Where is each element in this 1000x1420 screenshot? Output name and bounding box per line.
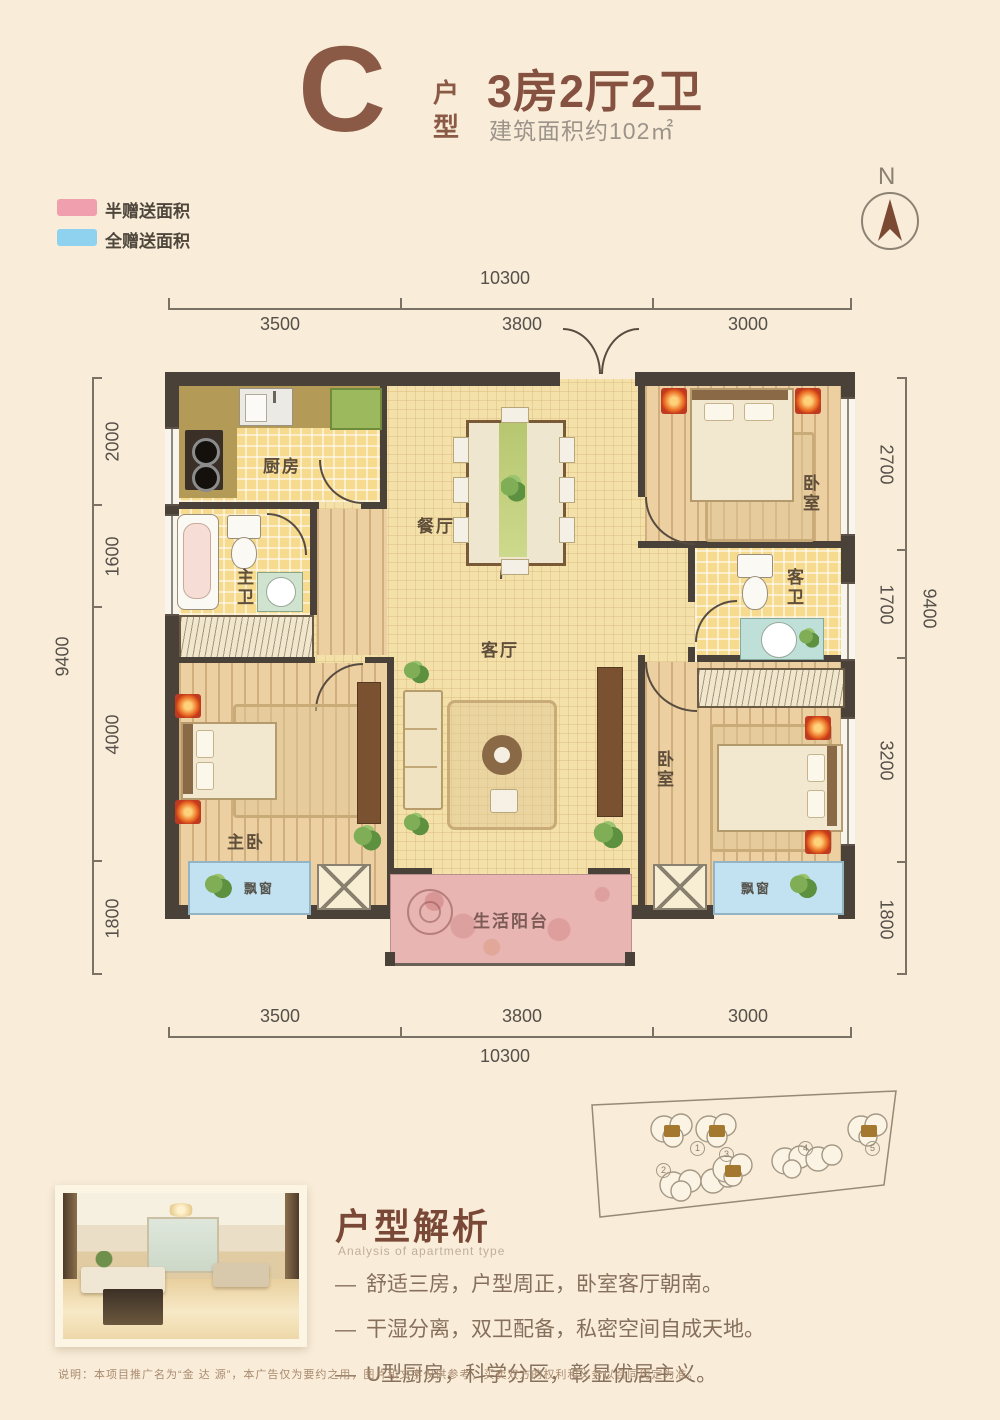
unit-type-label: 户型 [433, 76, 465, 144]
toilet-bowl-master [231, 537, 257, 569]
nightstand-icon [795, 388, 821, 414]
dim-left-seg2: 1600 [103, 522, 124, 592]
plant-icon [593, 820, 623, 852]
dim-right-seg2: 1700 [876, 570, 897, 640]
dim-left-seg4: 1800 [103, 884, 124, 954]
master-bath-label: 主卫 [231, 568, 256, 608]
dim-top-seg2: 3800 [502, 314, 542, 335]
plant-icon [403, 660, 429, 686]
dim-right-total: 9400 [919, 574, 940, 644]
building-number-2: 2 [656, 1163, 671, 1178]
area-subtitle: 建筑面积约102㎡ [489, 112, 674, 146]
analysis-point: —干湿分离，双卫配备，私密空间自成天地。 [335, 1313, 765, 1343]
building-number-3: 3 [719, 1147, 734, 1162]
dim-right-seg4: 1800 [876, 885, 897, 955]
toilet-tank-master [227, 515, 261, 539]
cutting-board-icon [330, 388, 382, 430]
dim-bottom-seg2: 3800 [502, 1006, 542, 1027]
nightstand-icon [661, 388, 687, 414]
analysis-title: 户型解析 [335, 1198, 491, 1250]
analysis-point: —舒适三房，户型周正，卧室客厅朝南。 [335, 1268, 765, 1298]
dim-right-seg3: 3200 [876, 726, 897, 796]
page-title: 3房2厅2卫 [487, 55, 703, 120]
compass-north-label: N [878, 163, 895, 191]
toilet-bowl-guest [742, 576, 768, 610]
analysis-points: —舒适三房，户型周正，卧室客厅朝南。 —干湿分离，双卫配备，私密空间自成天地。 … [335, 1268, 765, 1403]
analysis-subtitle: Analysis of apartment type [338, 1244, 505, 1258]
bedroom-br-bed-icon [717, 744, 843, 832]
dim-bottom-line [168, 1036, 852, 1038]
bullet-dash: — [335, 1318, 356, 1341]
dim-left-line [92, 377, 94, 975]
tv-cabinet-icon [597, 667, 623, 817]
plant-icon [353, 824, 381, 854]
dim-top-seg1: 3500 [260, 314, 300, 335]
kitchen-label: 厨房 [263, 452, 301, 477]
bullet-dash: — [335, 1273, 356, 1296]
living-rug [447, 700, 557, 830]
guest-bath-label: 客卫 [781, 568, 806, 608]
dim-top-line [168, 308, 852, 310]
interior-photo [55, 1185, 307, 1347]
bedroom-tr-label: 卧室 [797, 474, 822, 514]
unit-type-letter: C [298, 28, 386, 150]
dining-table-icon [466, 420, 566, 566]
bedroom-tr-bed-icon [690, 388, 794, 502]
entry-door-arc-right [601, 328, 639, 374]
legend-swatch-full-gift [57, 229, 97, 246]
master-closet [179, 615, 314, 661]
nightstand-icon [805, 716, 831, 740]
balcony-label: 生活阳台 [473, 907, 549, 932]
master-bed-icon [181, 722, 277, 800]
bathtub-icon [177, 514, 219, 610]
bay-window-right-label: 飘窗 [741, 878, 771, 897]
dim-bottom-seg1: 3500 [260, 1006, 300, 1027]
sofa-icon [403, 690, 443, 810]
dim-left-total: 9400 [53, 622, 74, 692]
dim-right-seg1: 2700 [876, 430, 897, 500]
dim-right-line [905, 377, 907, 975]
window-kitchen [165, 427, 179, 506]
legend-label-full-gift: 全赠送面积 [105, 227, 190, 252]
compass-icon [861, 192, 919, 250]
bay-window-right: 飘窗 [713, 861, 844, 915]
entry-door-arc-left [563, 328, 601, 374]
building-number-5: 5 [865, 1141, 880, 1156]
dim-bottom-total: 10300 [480, 1046, 530, 1067]
nightstand-icon [805, 830, 831, 854]
site-plan: 1 2 3 4 5 [578, 1085, 910, 1227]
kitchen-sink-icon [239, 388, 293, 426]
floor-plan: 厨房 主卫 餐厅 客厅 [165, 372, 855, 975]
dim-bottom-seg3: 3000 [728, 1006, 768, 1027]
living-label: 客厅 [481, 636, 519, 661]
dim-top-seg3: 3000 [728, 314, 768, 335]
dim-top-total: 10300 [480, 268, 530, 289]
bedroom-br-closet [697, 668, 845, 708]
legend-label-half-gift: 半赠送面积 [105, 197, 190, 222]
window-bedroom-tr [841, 397, 855, 536]
dining-label: 餐厅 [417, 512, 455, 537]
master-cabinet-icon [357, 682, 381, 824]
dim-left-seg1: 2000 [103, 407, 124, 477]
window-guest-bath [841, 582, 855, 661]
window-bedroom-br [841, 717, 855, 846]
plant-icon [403, 812, 429, 838]
bay-window-left: 飘窗 [188, 861, 311, 915]
balcony: 生活阳台 [390, 874, 632, 966]
planter-box-icon [317, 864, 371, 910]
bedroom-br-label: 卧室 [651, 750, 676, 790]
nightstand-icon [175, 694, 201, 718]
bay-window-left-label: 飘窗 [244, 878, 274, 897]
stove-icon [185, 430, 223, 490]
dim-left-seg3: 4000 [103, 700, 124, 770]
disclaimer-text: 说明：本项目推广名为“金 达 源”，本广告仅为要约之用，图片和文字仅供参考，买卖… [58, 1366, 699, 1382]
building-number-1: 1 [690, 1141, 705, 1156]
corridor-floor [317, 509, 387, 655]
master-bedroom-label: 主卧 [227, 828, 265, 853]
legend-swatch-half-gift [57, 199, 97, 216]
washing-machine-icon [407, 889, 453, 935]
nightstand-icon [175, 800, 201, 824]
building-number-4: 4 [798, 1141, 813, 1156]
planter-box-icon [653, 864, 707, 910]
basin-counter-master [257, 572, 303, 612]
toilet-tank-guest [737, 554, 773, 578]
floorplan-poster: C 户型 3房2厅2卫 建筑面积约102㎡ 半赠送面积 全赠送面积 N 1030… [0, 0, 1000, 1420]
basin-counter-guest [740, 618, 824, 660]
